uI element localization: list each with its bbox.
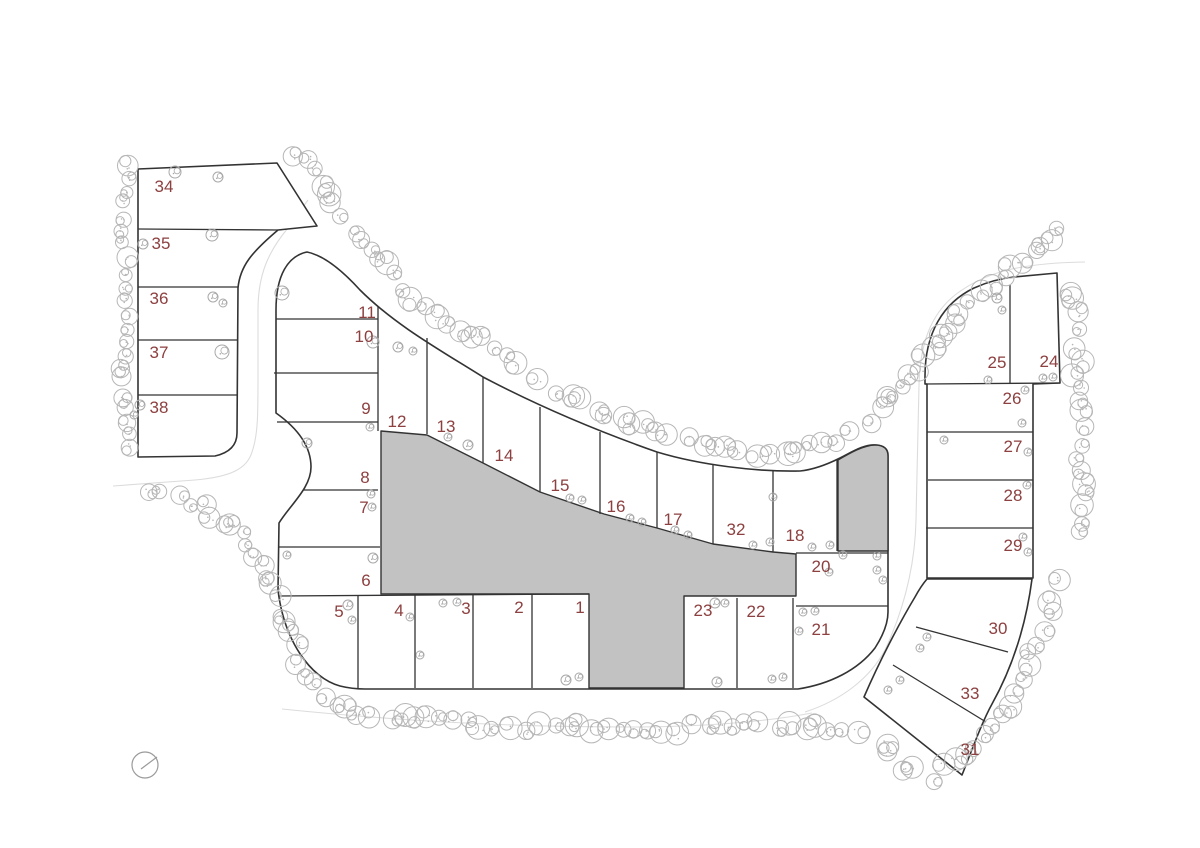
tree-speck bbox=[774, 453, 776, 455]
tree-speck bbox=[326, 203, 328, 205]
tree-speck bbox=[557, 722, 559, 724]
tree-speck bbox=[340, 704, 342, 706]
tree-speck bbox=[1077, 329, 1079, 331]
lot-label-5: 5 bbox=[334, 602, 343, 621]
tree-speck bbox=[228, 525, 230, 527]
tree-speck bbox=[935, 778, 937, 780]
tree-speck bbox=[1088, 490, 1090, 492]
tree-icon bbox=[1035, 643, 1044, 652]
lot-label-23: 23 bbox=[694, 601, 713, 620]
tree-speck bbox=[120, 240, 122, 242]
tree-speck bbox=[1026, 677, 1028, 679]
tree-speck bbox=[127, 343, 129, 345]
tree-speck bbox=[293, 664, 295, 666]
tree-speck bbox=[938, 335, 940, 337]
tree-speck bbox=[788, 453, 790, 455]
tree-speck bbox=[922, 371, 924, 373]
tree-speck bbox=[145, 489, 147, 491]
tree-speck bbox=[355, 714, 357, 716]
tree-speck bbox=[1081, 443, 1083, 445]
tree-speck bbox=[129, 433, 131, 435]
tree-icon bbox=[828, 436, 837, 445]
tree-speck bbox=[394, 272, 396, 274]
tree-speck bbox=[643, 424, 645, 426]
tree-speck bbox=[827, 731, 829, 733]
tree-speck bbox=[1009, 265, 1011, 267]
tree-speck bbox=[1052, 242, 1054, 244]
tree-speck bbox=[216, 178, 218, 180]
tree-speck bbox=[510, 728, 512, 730]
tree-speck bbox=[1085, 408, 1087, 410]
tree-speck bbox=[534, 723, 536, 725]
tree-speck bbox=[715, 683, 717, 685]
tree-speck bbox=[121, 376, 123, 378]
tree-speck bbox=[1077, 375, 1079, 377]
tree-speck bbox=[207, 516, 209, 518]
tree-speck bbox=[466, 446, 468, 448]
tree-speck bbox=[396, 348, 398, 350]
tree-icon bbox=[1013, 686, 1024, 697]
tree-speck bbox=[966, 300, 968, 302]
tree-icon bbox=[299, 153, 309, 163]
tree-speck bbox=[907, 373, 909, 375]
tree-speck bbox=[211, 298, 213, 300]
tree-speck bbox=[833, 445, 835, 447]
tree-speck bbox=[555, 394, 557, 396]
tree-speck bbox=[1041, 378, 1043, 380]
tree-speck bbox=[1003, 714, 1005, 716]
tree-speck bbox=[518, 364, 520, 366]
tree-speck bbox=[1037, 647, 1039, 649]
tree-speck bbox=[280, 595, 282, 597]
tree-icon bbox=[275, 616, 283, 624]
tree-speck bbox=[992, 725, 994, 727]
tree-speck bbox=[1039, 248, 1041, 250]
tree-icon bbox=[1080, 406, 1092, 418]
lot-label-35: 35 bbox=[152, 234, 171, 253]
tree-speck bbox=[886, 397, 888, 399]
tree-speck bbox=[875, 556, 877, 558]
tree-speck bbox=[381, 261, 383, 263]
tree-speck bbox=[125, 356, 127, 358]
tree-speck bbox=[123, 408, 125, 410]
tree-speck bbox=[247, 545, 249, 547]
tree-speck bbox=[1054, 230, 1056, 232]
tree-speck bbox=[128, 443, 130, 445]
tree-speck bbox=[1082, 425, 1084, 427]
tree-speck bbox=[526, 733, 528, 735]
tree-speck bbox=[414, 716, 416, 718]
tree-speck bbox=[128, 177, 130, 179]
tree-speck bbox=[883, 398, 885, 400]
tree-speck bbox=[709, 727, 711, 729]
tree-speck bbox=[280, 294, 282, 296]
lot-label-24: 24 bbox=[1040, 352, 1059, 371]
tree-speck bbox=[122, 287, 124, 289]
tree-speck bbox=[941, 763, 943, 765]
tree-speck bbox=[491, 728, 493, 730]
tree-speck bbox=[821, 442, 823, 444]
tree-speck bbox=[790, 453, 792, 455]
tree-speck bbox=[1079, 508, 1081, 510]
tree-speck bbox=[913, 768, 915, 770]
tree-speck bbox=[898, 680, 900, 682]
tree-speck bbox=[830, 729, 832, 731]
tree-speck bbox=[435, 320, 437, 322]
tree-speck bbox=[599, 411, 601, 413]
tree-speck bbox=[1072, 344, 1074, 346]
tree-speck bbox=[1074, 349, 1076, 351]
lot-label-34: 34 bbox=[155, 177, 174, 196]
tree-speck bbox=[312, 168, 314, 170]
tree-speck bbox=[1029, 665, 1031, 667]
tree-icon bbox=[506, 361, 519, 374]
tree-speck bbox=[580, 500, 582, 502]
tree-icon bbox=[650, 721, 672, 743]
tree-icon bbox=[492, 347, 500, 355]
tree-speck bbox=[479, 333, 481, 335]
tree-speck bbox=[1051, 377, 1053, 379]
tree-speck bbox=[458, 331, 460, 333]
tree-speck bbox=[129, 316, 131, 318]
tree-speck bbox=[330, 195, 332, 197]
tree-speck bbox=[837, 441, 839, 443]
tree-icon bbox=[1043, 591, 1055, 603]
tree-icon bbox=[171, 486, 189, 504]
tree-speck bbox=[126, 192, 128, 194]
tree-speck bbox=[673, 735, 675, 737]
tree-speck bbox=[392, 719, 394, 721]
tree-icon bbox=[313, 168, 321, 176]
tree-icon bbox=[340, 213, 348, 221]
tree-icon bbox=[121, 327, 128, 334]
tree-speck bbox=[1081, 358, 1083, 360]
tree-speck bbox=[212, 519, 214, 521]
tree-speck bbox=[886, 690, 888, 692]
tree-speck bbox=[473, 335, 475, 337]
tree-speck bbox=[1047, 628, 1049, 630]
tree-speck bbox=[1078, 316, 1080, 318]
tree-icon bbox=[933, 759, 945, 771]
tree-speck bbox=[1026, 552, 1028, 554]
lot-label-29: 29 bbox=[1004, 536, 1023, 555]
tree-icon bbox=[840, 425, 850, 435]
tree-speck bbox=[591, 726, 593, 728]
tree-speck bbox=[630, 426, 632, 428]
tree-speck bbox=[925, 637, 927, 639]
tree-speck bbox=[564, 681, 566, 683]
tree-speck bbox=[931, 344, 933, 346]
tree-speck bbox=[1076, 299, 1078, 301]
tree-icon bbox=[786, 722, 799, 735]
tree-speck bbox=[123, 203, 125, 205]
tree-speck bbox=[127, 257, 129, 259]
tree-speck bbox=[280, 615, 282, 617]
tree-icon bbox=[258, 555, 269, 566]
tree-speck bbox=[294, 154, 296, 156]
tree-icon bbox=[1049, 573, 1061, 585]
tree-icon bbox=[727, 447, 737, 457]
plan-canvas: 3435363738111091213141516173218208765432… bbox=[0, 0, 1200, 848]
lot-label-21: 21 bbox=[812, 620, 831, 639]
tree-speck bbox=[378, 259, 380, 261]
tree-speck bbox=[455, 602, 457, 604]
tree-icon bbox=[684, 436, 694, 446]
tree-speck bbox=[441, 603, 443, 605]
tree-speck bbox=[571, 724, 573, 726]
tree-speck bbox=[678, 738, 680, 740]
lot-label-33: 33 bbox=[961, 684, 980, 703]
tree-speck bbox=[917, 374, 919, 376]
tree-icon bbox=[1068, 302, 1088, 322]
tree-icon bbox=[120, 156, 131, 167]
tree-speck bbox=[771, 497, 773, 499]
site-plan-svg: 3435363738111091213141516173218208765432… bbox=[0, 0, 1200, 848]
lot-label-16: 16 bbox=[607, 497, 626, 516]
tree-speck bbox=[128, 167, 130, 169]
tree-speck bbox=[590, 730, 592, 732]
tree-speck bbox=[358, 239, 360, 241]
tree-speck bbox=[418, 655, 420, 657]
tree-speck bbox=[733, 450, 735, 452]
tree-speck bbox=[245, 543, 247, 545]
tree-speck bbox=[435, 715, 437, 717]
tree-speck bbox=[191, 506, 193, 508]
tree-speck bbox=[265, 565, 267, 567]
tree-icon bbox=[568, 392, 580, 404]
tree-icon bbox=[656, 430, 668, 442]
tree-speck bbox=[1007, 708, 1009, 710]
tree-speck bbox=[872, 421, 874, 423]
tree-icon bbox=[863, 416, 873, 426]
compass-circle bbox=[132, 752, 158, 778]
tree-icon bbox=[403, 298, 416, 311]
tree-speck bbox=[776, 727, 778, 729]
tree-speck bbox=[944, 767, 946, 769]
tree-speck bbox=[183, 495, 185, 497]
tree-speck bbox=[758, 720, 760, 722]
tree-speck bbox=[645, 730, 647, 732]
tree-speck bbox=[434, 312, 436, 314]
tree-speck bbox=[448, 721, 450, 723]
tree-speck bbox=[686, 535, 688, 537]
tree-speck bbox=[1082, 409, 1084, 411]
tree-speck bbox=[1023, 390, 1025, 392]
tree-icon bbox=[873, 397, 894, 418]
tree-speck bbox=[368, 427, 370, 429]
lot-label-7: 7 bbox=[359, 498, 368, 517]
tree-speck bbox=[173, 173, 175, 175]
tree-speck bbox=[1020, 423, 1022, 425]
lot-label-38: 38 bbox=[150, 398, 169, 417]
tree-speck bbox=[424, 303, 426, 305]
tree-speck bbox=[442, 323, 444, 325]
tree-speck bbox=[125, 274, 127, 276]
tree-speck bbox=[138, 406, 140, 408]
tree-speck bbox=[741, 722, 743, 724]
lot-label-11: 11 bbox=[358, 303, 376, 322]
tree-speck bbox=[306, 677, 308, 679]
tree-speck bbox=[253, 556, 255, 558]
block-east bbox=[925, 273, 1060, 578]
tree-speck bbox=[125, 298, 127, 300]
tree-speck bbox=[183, 497, 185, 499]
tree-speck bbox=[990, 729, 992, 731]
tree-speck bbox=[540, 381, 542, 383]
tree-speck bbox=[746, 720, 748, 722]
tree-speck bbox=[768, 542, 770, 544]
tree-icon bbox=[616, 724, 624, 732]
tree-speck bbox=[601, 413, 603, 415]
tree-icon bbox=[445, 317, 454, 326]
tree-speck bbox=[841, 555, 843, 557]
tree-speck bbox=[408, 617, 410, 619]
tree-speck bbox=[949, 333, 951, 335]
tree-speck bbox=[537, 721, 539, 723]
tree-speck bbox=[337, 214, 339, 216]
tree-speck bbox=[626, 415, 628, 417]
tree-icon bbox=[312, 679, 321, 688]
lot-label-25: 25 bbox=[988, 353, 1007, 372]
tree-speck bbox=[1026, 647, 1028, 649]
tree-speck bbox=[1083, 387, 1085, 389]
tree-speck bbox=[393, 717, 395, 719]
tree-speck bbox=[477, 336, 479, 338]
tree-speck bbox=[1054, 227, 1056, 229]
lot-label-27: 27 bbox=[1004, 437, 1023, 456]
tree-speck bbox=[623, 728, 625, 730]
tree-icon bbox=[116, 217, 124, 225]
tree-speck bbox=[127, 168, 129, 170]
tree-speck bbox=[606, 727, 608, 729]
lot-label-37: 37 bbox=[150, 343, 169, 362]
tree-speck bbox=[453, 720, 455, 722]
tree-speck bbox=[718, 446, 720, 448]
tree-speck bbox=[1047, 242, 1049, 244]
tree-speck bbox=[901, 385, 903, 387]
lot-label-18: 18 bbox=[786, 526, 805, 545]
compass-icon bbox=[132, 752, 158, 778]
tree-speck bbox=[805, 724, 807, 726]
tree-speck bbox=[890, 750, 892, 752]
tree-speck bbox=[658, 729, 660, 731]
tree-speck bbox=[1079, 447, 1081, 449]
tree-icon bbox=[761, 446, 772, 457]
tree-speck bbox=[1071, 375, 1073, 377]
tree-speck bbox=[1047, 600, 1049, 602]
tree-speck bbox=[810, 547, 812, 549]
lot-label-28: 28 bbox=[1004, 486, 1023, 505]
tree-speck bbox=[468, 716, 470, 718]
tree-speck bbox=[403, 717, 405, 719]
tree-speck bbox=[533, 379, 535, 381]
tree-speck bbox=[889, 396, 891, 398]
tree-speck bbox=[281, 615, 283, 617]
tree-icon bbox=[317, 694, 327, 704]
tree-speck bbox=[122, 200, 124, 202]
tree-icon bbox=[564, 395, 576, 407]
tree-speck bbox=[739, 452, 741, 454]
tree-icon bbox=[746, 451, 758, 463]
tree-icon bbox=[507, 352, 515, 360]
tree-speck bbox=[1006, 712, 1008, 714]
tree-speck bbox=[413, 297, 415, 299]
tree-icon bbox=[180, 491, 190, 501]
tree-speck bbox=[579, 395, 581, 397]
tree-speck bbox=[128, 314, 130, 316]
tree-speck bbox=[359, 714, 361, 716]
lot-label-22: 22 bbox=[747, 602, 766, 621]
tree-speck bbox=[123, 289, 125, 291]
tree-speck bbox=[1074, 457, 1076, 459]
tree-speck bbox=[1028, 660, 1030, 662]
tree-speck bbox=[1052, 613, 1054, 615]
tree-speck bbox=[828, 545, 830, 547]
lot-label-31: 31 bbox=[961, 740, 980, 759]
tree-icon bbox=[1073, 328, 1081, 336]
tree-icon bbox=[848, 721, 870, 743]
tree-speck bbox=[809, 443, 811, 445]
lot-label-14: 14 bbox=[495, 446, 514, 465]
tree-speck bbox=[126, 423, 128, 425]
tree-speck bbox=[339, 217, 341, 219]
tree-speck bbox=[350, 620, 352, 622]
tree-speck bbox=[801, 612, 803, 614]
tree-speck bbox=[987, 733, 989, 735]
tree-speck bbox=[1014, 692, 1016, 694]
tree-speck bbox=[751, 545, 753, 547]
tree-speck bbox=[225, 527, 227, 529]
tree-speck bbox=[303, 676, 305, 678]
tree-speck bbox=[132, 415, 134, 417]
tree-speck bbox=[797, 631, 799, 633]
tree-speck bbox=[243, 531, 245, 533]
tree-icon bbox=[901, 756, 923, 778]
tree-speck bbox=[994, 282, 996, 284]
tree-speck bbox=[1078, 404, 1080, 406]
tree-speck bbox=[666, 434, 668, 436]
tree-speck bbox=[952, 324, 954, 326]
tree-speck bbox=[573, 725, 575, 727]
tree-speck bbox=[946, 333, 948, 335]
tree-speck bbox=[148, 492, 150, 494]
tree-speck bbox=[1034, 249, 1036, 251]
tree-icon bbox=[321, 176, 333, 188]
tree-speck bbox=[506, 358, 508, 360]
tree-speck bbox=[1042, 629, 1044, 631]
tree-speck bbox=[1026, 452, 1028, 454]
tree-speck bbox=[786, 727, 788, 729]
tree-speck bbox=[1087, 491, 1089, 493]
tree-speck bbox=[880, 406, 882, 408]
tree-speck bbox=[640, 522, 642, 524]
tree-speck bbox=[123, 302, 125, 304]
tree-speck bbox=[849, 430, 851, 432]
tree-speck bbox=[577, 677, 579, 679]
tree-icon bbox=[261, 578, 269, 586]
lot-label-30: 30 bbox=[989, 619, 1008, 638]
tree-speck bbox=[1025, 485, 1027, 487]
tree-speck bbox=[1079, 484, 1081, 486]
tree-speck bbox=[299, 642, 301, 644]
tree-speck bbox=[1000, 310, 1002, 312]
tree-icon bbox=[590, 723, 603, 736]
tree-speck bbox=[1081, 521, 1083, 523]
tree-speck bbox=[1052, 611, 1054, 613]
tree-speck bbox=[119, 230, 121, 232]
tree-icon bbox=[198, 496, 209, 507]
tree-speck bbox=[1057, 577, 1059, 579]
